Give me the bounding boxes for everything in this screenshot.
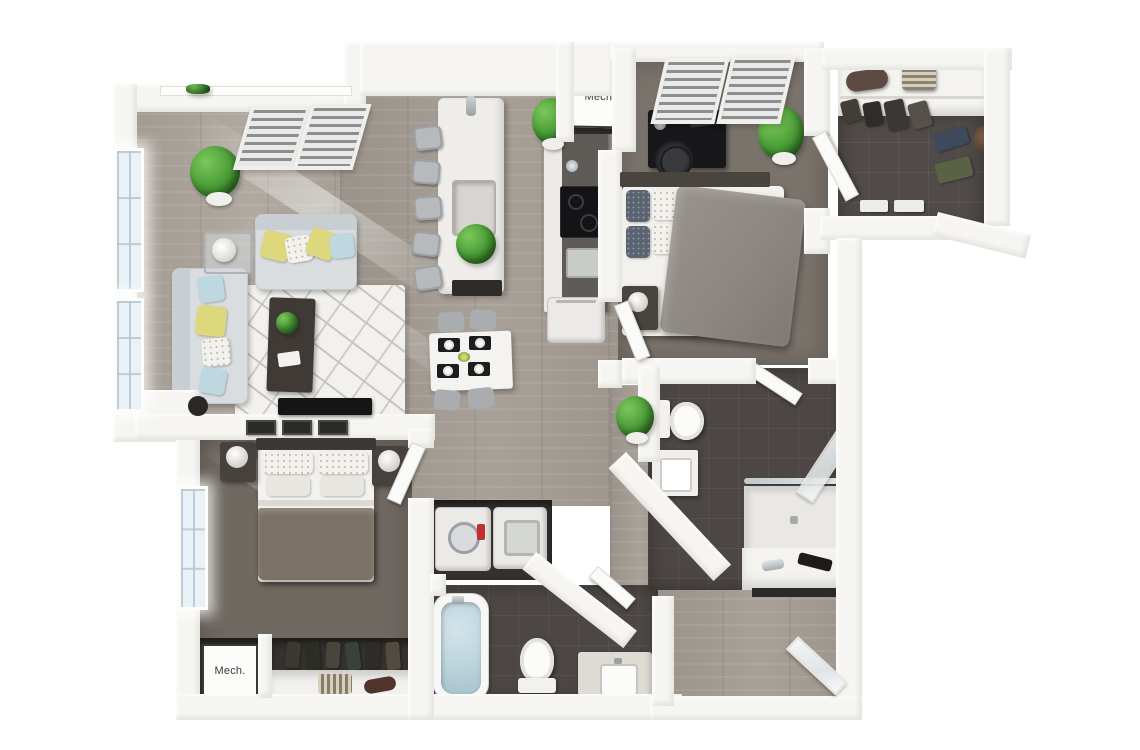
counter-sink — [566, 248, 600, 278]
bar-stool — [413, 124, 444, 151]
striped-storage-box — [318, 674, 352, 694]
wall-art-frame — [246, 420, 276, 435]
shower-drain — [790, 516, 798, 524]
mech-lower-label: Mech. — [215, 665, 246, 677]
island-plant — [456, 224, 496, 264]
vanity2-sink — [660, 458, 692, 492]
plate — [444, 340, 454, 350]
toilet1-tank — [518, 678, 556, 693]
plate — [475, 338, 485, 348]
island-faucet — [466, 96, 476, 116]
toilet1-bowl — [520, 638, 554, 682]
bar-stool — [412, 264, 443, 292]
dining-chair — [437, 311, 464, 333]
refrigerator — [548, 298, 604, 342]
wall — [556, 42, 574, 142]
bar-stool — [411, 230, 442, 257]
plant-pot — [772, 152, 796, 165]
throw-pillow — [329, 233, 355, 259]
wall — [360, 42, 614, 96]
throw-pillow — [198, 366, 228, 396]
coffee-table-plant — [276, 312, 298, 334]
console-slot — [752, 588, 838, 597]
throw-pillow — [196, 274, 225, 303]
bathtub-faucet — [452, 596, 464, 604]
bedroom1-window — [178, 486, 208, 610]
bed1-pillow — [263, 452, 313, 474]
bed2-pillow — [626, 190, 650, 222]
bed1-pillow — [320, 476, 364, 496]
bed1-sheet-fold — [258, 500, 374, 506]
closet-clothes — [285, 641, 302, 668]
hanging-shoes — [862, 101, 884, 128]
centerpiece — [458, 352, 470, 362]
wall — [650, 696, 862, 720]
living-room-window — [114, 148, 144, 292]
counter-kettle — [566, 160, 578, 172]
closet-clothes — [365, 641, 381, 668]
throw-pillow — [195, 305, 228, 338]
vanity1-faucet — [614, 658, 622, 664]
cooktop-burner — [568, 194, 584, 210]
bed1-pillow — [318, 452, 368, 474]
bed1-blanket — [258, 508, 374, 580]
dining-chair — [433, 389, 461, 411]
closet-rail — [840, 96, 986, 99]
living-room-window — [114, 298, 144, 412]
wall — [652, 596, 674, 706]
wall — [612, 48, 636, 152]
bed2-pillow — [626, 226, 650, 258]
storage-bin — [860, 200, 888, 212]
nightstand-lamp — [226, 446, 248, 468]
entry-floor — [655, 585, 845, 702]
cooktop — [560, 186, 602, 238]
detergent-bottle — [477, 524, 485, 540]
wall — [430, 574, 446, 596]
wall — [984, 48, 1010, 226]
closet-clothes — [325, 642, 341, 669]
bar-stool — [413, 195, 443, 221]
tv-console — [278, 398, 372, 415]
throw-pillow — [201, 337, 231, 367]
bed1-pillow — [266, 476, 310, 496]
plate — [443, 366, 453, 376]
coffee-table — [266, 297, 315, 393]
floor-plan: Mech. Mech. — [0, 0, 1140, 750]
wall — [408, 498, 434, 720]
storage-bin — [894, 200, 924, 212]
closet-clothes — [385, 642, 401, 671]
table-lamp — [212, 238, 236, 262]
plant-pot — [626, 432, 648, 444]
refrigerator-handle — [556, 300, 596, 303]
dining-chair — [467, 387, 495, 410]
mech-door-lower: Mech. — [202, 644, 258, 698]
sofa-back-cushion — [172, 268, 190, 404]
wall-art-frame — [282, 420, 312, 435]
bed1-headboard — [256, 438, 376, 450]
wall — [598, 360, 622, 388]
island-base — [452, 280, 502, 296]
floor-lamp — [188, 396, 208, 416]
bed2-duvet — [659, 185, 806, 348]
toilet2-bowl — [670, 402, 704, 440]
wall-art-frame — [318, 420, 348, 435]
closet-clothes — [305, 641, 321, 670]
bed2-headboard — [620, 172, 770, 187]
loveseat-back-cushion — [255, 214, 357, 230]
washer-door — [448, 522, 480, 554]
wall — [258, 634, 272, 698]
wall — [836, 238, 862, 710]
cooktop-burner — [580, 214, 598, 232]
plate — [474, 364, 484, 374]
bathtub-water — [441, 602, 481, 694]
dryer-door — [504, 520, 540, 556]
plant-pot — [206, 192, 232, 206]
sill-plant — [186, 84, 210, 94]
nightstand-lamp — [378, 450, 400, 472]
bar-stool — [411, 159, 441, 185]
vanity1-sink — [600, 664, 638, 696]
living-room-plant — [190, 146, 240, 198]
dining-chair — [469, 309, 496, 330]
wall — [598, 150, 622, 302]
wall — [820, 216, 952, 240]
